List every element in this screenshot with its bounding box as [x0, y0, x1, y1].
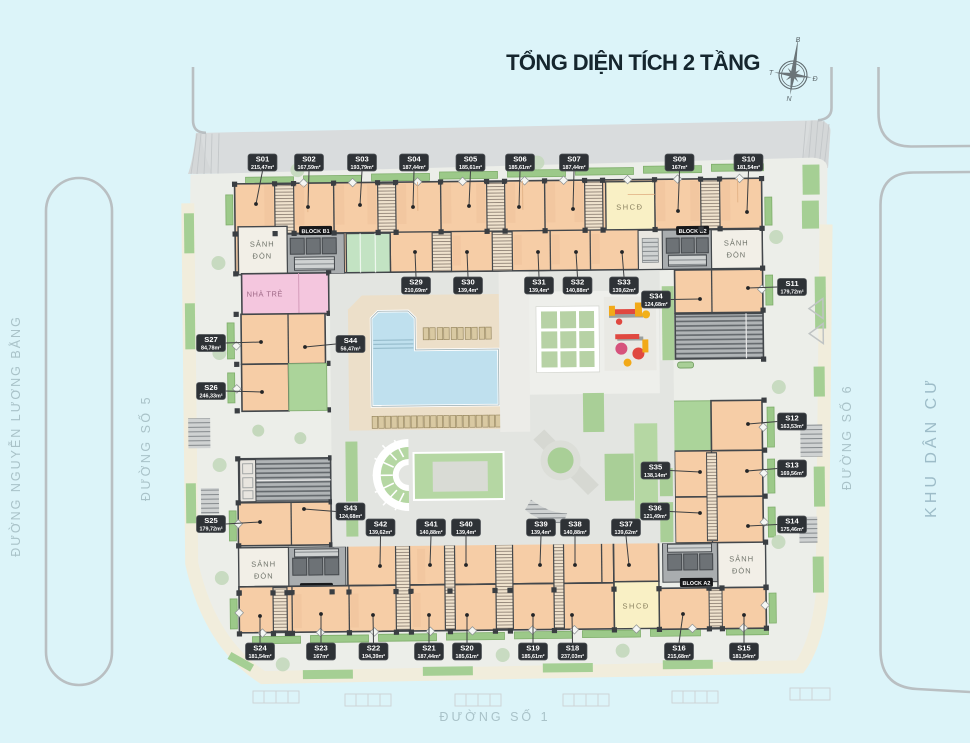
- svg-text:181,54m²: 181,54m²: [248, 654, 271, 660]
- svg-text:194,39m²: 194,39m²: [362, 654, 385, 660]
- svg-text:BLOCK A2: BLOCK A2: [682, 581, 710, 587]
- svg-text:S37: S37: [619, 519, 633, 528]
- svg-text:S39: S39: [534, 519, 548, 528]
- svg-text:140,88m²: 140,88m²: [419, 530, 442, 536]
- svg-text:S22: S22: [367, 643, 381, 652]
- svg-text:S25: S25: [204, 516, 218, 525]
- svg-text:193,79m²: 193,79m²: [350, 165, 373, 171]
- svg-text:ĐÓN: ĐÓN: [726, 250, 746, 259]
- svg-text:SẢNH: SẢNH: [729, 554, 754, 563]
- svg-text:167m²: 167m²: [313, 654, 329, 660]
- svg-text:S12: S12: [785, 413, 799, 422]
- svg-text:ĐƯỜNG SỐ 6: ĐƯỜNG SỐ 6: [839, 384, 854, 490]
- svg-text:S06: S06: [513, 154, 527, 163]
- svg-text:139,4m²: 139,4m²: [456, 530, 476, 536]
- svg-text:210,69m²: 210,69m²: [404, 288, 427, 294]
- svg-text:S21: S21: [422, 643, 436, 652]
- svg-text:140,88m²: 140,88m²: [563, 530, 586, 536]
- svg-text:SHCĐ: SHCĐ: [616, 202, 643, 211]
- svg-text:S33: S33: [617, 277, 631, 286]
- svg-text:163,53m²: 163,53m²: [780, 424, 803, 430]
- svg-text:185,61m²: 185,61m²: [459, 165, 482, 171]
- svg-text:S01: S01: [256, 154, 270, 163]
- svg-text:TỔNG DIỆN TÍCH 2 TẦNG: TỔNG DIỆN TÍCH 2 TẦNG: [506, 50, 760, 75]
- svg-text:181,54m²: 181,54m²: [732, 654, 755, 660]
- svg-text:S13: S13: [785, 460, 799, 469]
- svg-text:S02: S02: [302, 154, 316, 163]
- svg-text:185,61m²: 185,61m²: [455, 654, 478, 660]
- svg-text:B: B: [796, 37, 801, 44]
- svg-text:ĐÓN: ĐÓN: [732, 566, 752, 575]
- svg-text:ĐÓN: ĐÓN: [252, 251, 272, 260]
- svg-text:S23: S23: [314, 643, 328, 652]
- svg-text:179,72m²: 179,72m²: [199, 526, 222, 532]
- svg-text:S38: S38: [568, 519, 582, 528]
- svg-text:SẢNH: SẢNH: [250, 239, 275, 248]
- svg-text:S24: S24: [253, 643, 267, 652]
- svg-text:S43: S43: [344, 503, 358, 512]
- svg-text:169,56m²: 169,56m²: [780, 471, 803, 477]
- svg-text:139,62m²: 139,62m²: [612, 288, 635, 294]
- svg-text:237,03m²: 237,03m²: [561, 654, 584, 660]
- svg-text:ĐƯỜNG NGUYỄN LƯƠNG BẰNG: ĐƯỜNG NGUYỄN LƯƠNG BẰNG: [8, 315, 23, 557]
- svg-text:S05: S05: [464, 154, 478, 163]
- svg-text:S11: S11: [785, 279, 799, 288]
- svg-text:139,62m²: 139,62m²: [369, 530, 392, 536]
- svg-text:S27: S27: [204, 335, 218, 344]
- svg-text:S19: S19: [526, 643, 540, 652]
- svg-text:S44: S44: [344, 336, 358, 345]
- svg-text:S20: S20: [460, 643, 474, 652]
- svg-text:S32: S32: [571, 277, 585, 286]
- svg-text:181,54m²: 181,54m²: [737, 165, 760, 171]
- svg-text:T: T: [769, 70, 774, 77]
- svg-text:ĐƯỜNG SỐ 1: ĐƯỜNG SỐ 1: [439, 709, 550, 724]
- svg-text:SHCĐ: SHCĐ: [622, 601, 649, 610]
- svg-text:139,4m²: 139,4m²: [458, 288, 478, 294]
- svg-text:139,62m²: 139,62m²: [614, 530, 637, 536]
- svg-text:246,33m²: 246,33m²: [199, 393, 222, 399]
- svg-text:S29: S29: [409, 277, 423, 286]
- svg-text:187,44m²: 187,44m²: [562, 165, 585, 171]
- svg-text:84,78m²: 84,78m²: [201, 345, 221, 351]
- svg-text:S09: S09: [673, 154, 687, 163]
- svg-text:179,72m²: 179,72m²: [780, 289, 803, 295]
- svg-text:Đ: Đ: [812, 76, 817, 83]
- svg-text:S30: S30: [461, 277, 475, 286]
- svg-text:S40: S40: [459, 519, 473, 528]
- svg-text:SẢNH: SẢNH: [251, 559, 276, 568]
- svg-text:S35: S35: [649, 462, 663, 471]
- svg-text:215,47m²: 215,47m²: [251, 165, 274, 171]
- svg-text:S14: S14: [785, 516, 799, 525]
- svg-text:BLOCK B1: BLOCK B1: [302, 229, 330, 235]
- svg-text:175,46m²: 175,46m²: [780, 527, 803, 533]
- svg-text:S10: S10: [742, 154, 756, 163]
- svg-text:S34: S34: [649, 291, 663, 300]
- svg-text:S16: S16: [672, 643, 686, 652]
- svg-text:S03: S03: [355, 154, 369, 163]
- svg-text:185,61m²: 185,61m²: [508, 165, 531, 171]
- svg-text:215,68m²: 215,68m²: [667, 654, 690, 660]
- svg-text:187,44m²: 187,44m²: [402, 165, 425, 171]
- svg-text:S26: S26: [204, 383, 218, 392]
- svg-text:NHÀ TRẺ: NHÀ TRẺ: [247, 289, 283, 298]
- svg-text:121,49m²: 121,49m²: [643, 514, 666, 520]
- svg-text:KHU DÂN CƯ: KHU DÂN CƯ: [921, 376, 940, 518]
- svg-text:124,68m²: 124,68m²: [339, 514, 362, 520]
- svg-text:S36: S36: [648, 503, 662, 512]
- svg-text:187,44m²: 187,44m²: [417, 654, 440, 660]
- svg-text:ĐÓN: ĐÓN: [254, 571, 274, 580]
- svg-text:S31: S31: [532, 277, 546, 286]
- svg-text:S42: S42: [374, 519, 388, 528]
- svg-text:138,14m²: 138,14m²: [644, 473, 667, 479]
- svg-text:ĐƯỜNG SỐ 5: ĐƯỜNG SỐ 5: [138, 395, 153, 501]
- svg-text:139,4m²: 139,4m²: [531, 530, 551, 536]
- svg-text:167m²: 167m²: [672, 165, 688, 171]
- svg-text:139,4m²: 139,4m²: [529, 288, 549, 294]
- svg-text:167,59m²: 167,59m²: [297, 165, 320, 171]
- svg-text:S41: S41: [424, 519, 438, 528]
- svg-text:S04: S04: [407, 154, 421, 163]
- svg-text:140,88m²: 140,88m²: [566, 288, 589, 294]
- svg-text:185,61m²: 185,61m²: [521, 654, 544, 660]
- svg-text:S07: S07: [567, 154, 581, 163]
- svg-text:SẢNH: SẢNH: [724, 238, 749, 247]
- svg-text:S18: S18: [566, 643, 580, 652]
- svg-text:S15: S15: [737, 643, 751, 652]
- svg-text:124,68m²: 124,68m²: [644, 302, 667, 308]
- svg-text:56,47m²: 56,47m²: [340, 346, 360, 352]
